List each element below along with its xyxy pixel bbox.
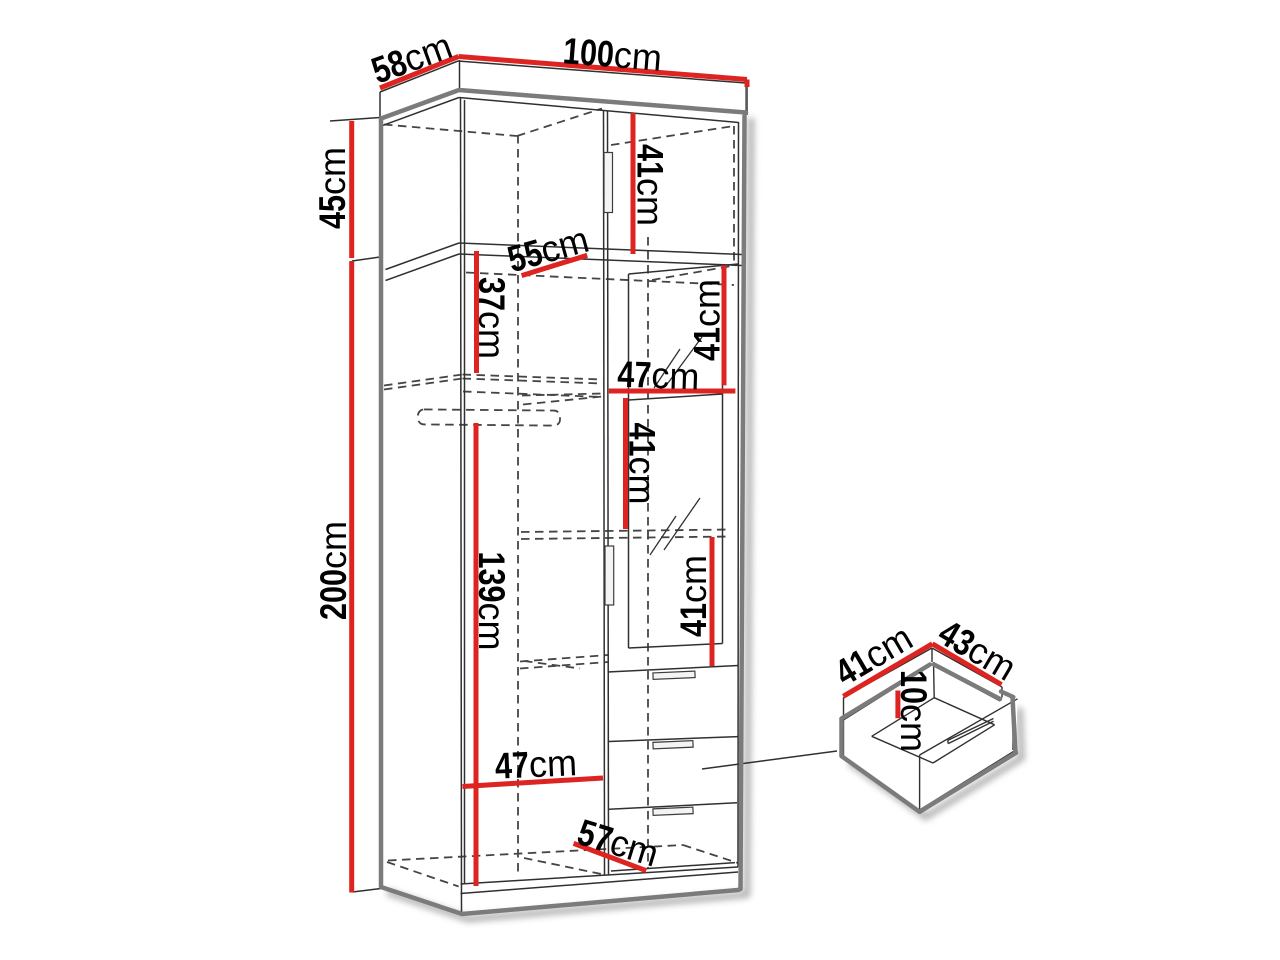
svg-text:139cm: 139cm [471,552,512,651]
svg-text:37cm: 37cm [471,277,512,359]
svg-text:47cm: 47cm [494,742,578,787]
svg-text:200cm: 200cm [313,521,354,620]
svg-text:47cm: 47cm [617,354,700,398]
svg-text:41cm: 41cm [622,423,663,505]
svg-text:41cm: 41cm [687,279,728,361]
svg-text:10cm: 10cm [893,670,934,752]
svg-text:41cm: 41cm [673,555,714,637]
svg-text:41cm: 41cm [630,144,671,226]
svg-text:100cm: 100cm [562,30,664,79]
svg-text:45cm: 45cm [312,147,353,229]
